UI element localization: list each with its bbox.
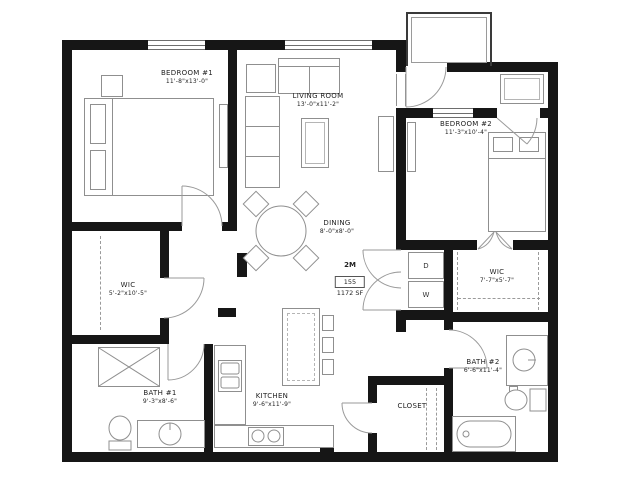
- door-arc-laundry-lower: [363, 272, 401, 310]
- room-dims: 9'-3"x8'-6": [143, 398, 177, 406]
- room-name: LIVING ROOM: [293, 92, 344, 101]
- door-arc-entry: [406, 67, 446, 107]
- toilet1-bowl-icon: [109, 416, 131, 440]
- door-arc-bedroom2: [527, 118, 537, 144]
- room-name: WIC: [109, 281, 147, 290]
- room-label-dining: DINING 8'-0"x8'-0": [320, 219, 354, 235]
- room-name: KITCHEN: [253, 392, 291, 401]
- unit-info: 2M 155 1172 SF: [335, 261, 365, 297]
- room-dims: 11'-8"x13'-0": [161, 78, 213, 86]
- room-label-bedroom2: BEDROOM #2 11'-3"x10'-4": [440, 120, 492, 136]
- unit-type: 2M: [335, 261, 365, 269]
- room-label-wic2: WIC 7'-7"x5'-7": [480, 268, 514, 284]
- door-arc-bath1: [168, 344, 204, 380]
- room-label-kitchen: KITCHEN 9'-6"x11'-9": [253, 392, 291, 408]
- room-name: DINING: [320, 219, 354, 228]
- room-label-bedroom1: BEDROOM #1 11'-8"x13'-0": [161, 69, 213, 85]
- room-name: BEDROOM #1: [161, 69, 213, 78]
- door-arc-laundry-upper: [363, 250, 401, 288]
- door-arc-closet: [342, 403, 372, 433]
- toilet2-bowl-icon: [505, 390, 527, 410]
- room-label-bath2: BATH #2 6'-6"x11'-4": [464, 358, 502, 374]
- bathtub-basin-icon: [457, 421, 511, 447]
- room-dims: 11'-3"x10'-4": [440, 129, 492, 137]
- floorplan-canvas: D W: [0, 0, 640, 480]
- toilet2-tank-icon: [530, 389, 546, 411]
- sink-basin-2: [221, 377, 239, 388]
- door-arc-bedroom1: [182, 186, 222, 226]
- sink-basin-1: [221, 363, 239, 374]
- unit-area: 1172 SF: [335, 289, 365, 297]
- room-dims: 6'-6"x11'-4": [464, 367, 502, 375]
- door-arc-wic1: [164, 278, 204, 318]
- room-dims: 7'-7"x5'-7": [480, 277, 514, 285]
- room-label-living: LIVING ROOM 13'-0"x11'-2": [293, 92, 344, 108]
- room-dims: 8'-0"x8'-0": [320, 228, 354, 236]
- dining-set-icon: [243, 191, 318, 270]
- dining-table-icon: [256, 206, 306, 256]
- room-name: WIC: [480, 268, 514, 277]
- room-name: CLOSET: [398, 402, 427, 411]
- room-dims: 5'-2"x10'-5": [109, 290, 147, 298]
- wic2-double-doors: [478, 232, 512, 249]
- room-dims: 13'-0"x11'-2": [293, 101, 344, 109]
- room-name: BATH #1: [143, 389, 177, 398]
- burner-icon-1: [252, 430, 264, 442]
- fixtures-layer: [0, 0, 640, 480]
- room-label-bath1: BATH #1 9'-3"x8'-6": [143, 389, 177, 405]
- burner-icon-2: [268, 430, 280, 442]
- room-name: BEDROOM #2: [440, 120, 492, 129]
- room-label-closet: CLOSET: [398, 402, 427, 411]
- unit-number-badge: 155: [335, 276, 365, 288]
- toilet1-tank-icon: [109, 441, 131, 450]
- room-dims: 9'-6"x11'-9": [253, 401, 291, 409]
- room-name: BATH #2: [464, 358, 502, 367]
- room-label-wic1: WIC 5'-2"x10'-5": [109, 281, 147, 297]
